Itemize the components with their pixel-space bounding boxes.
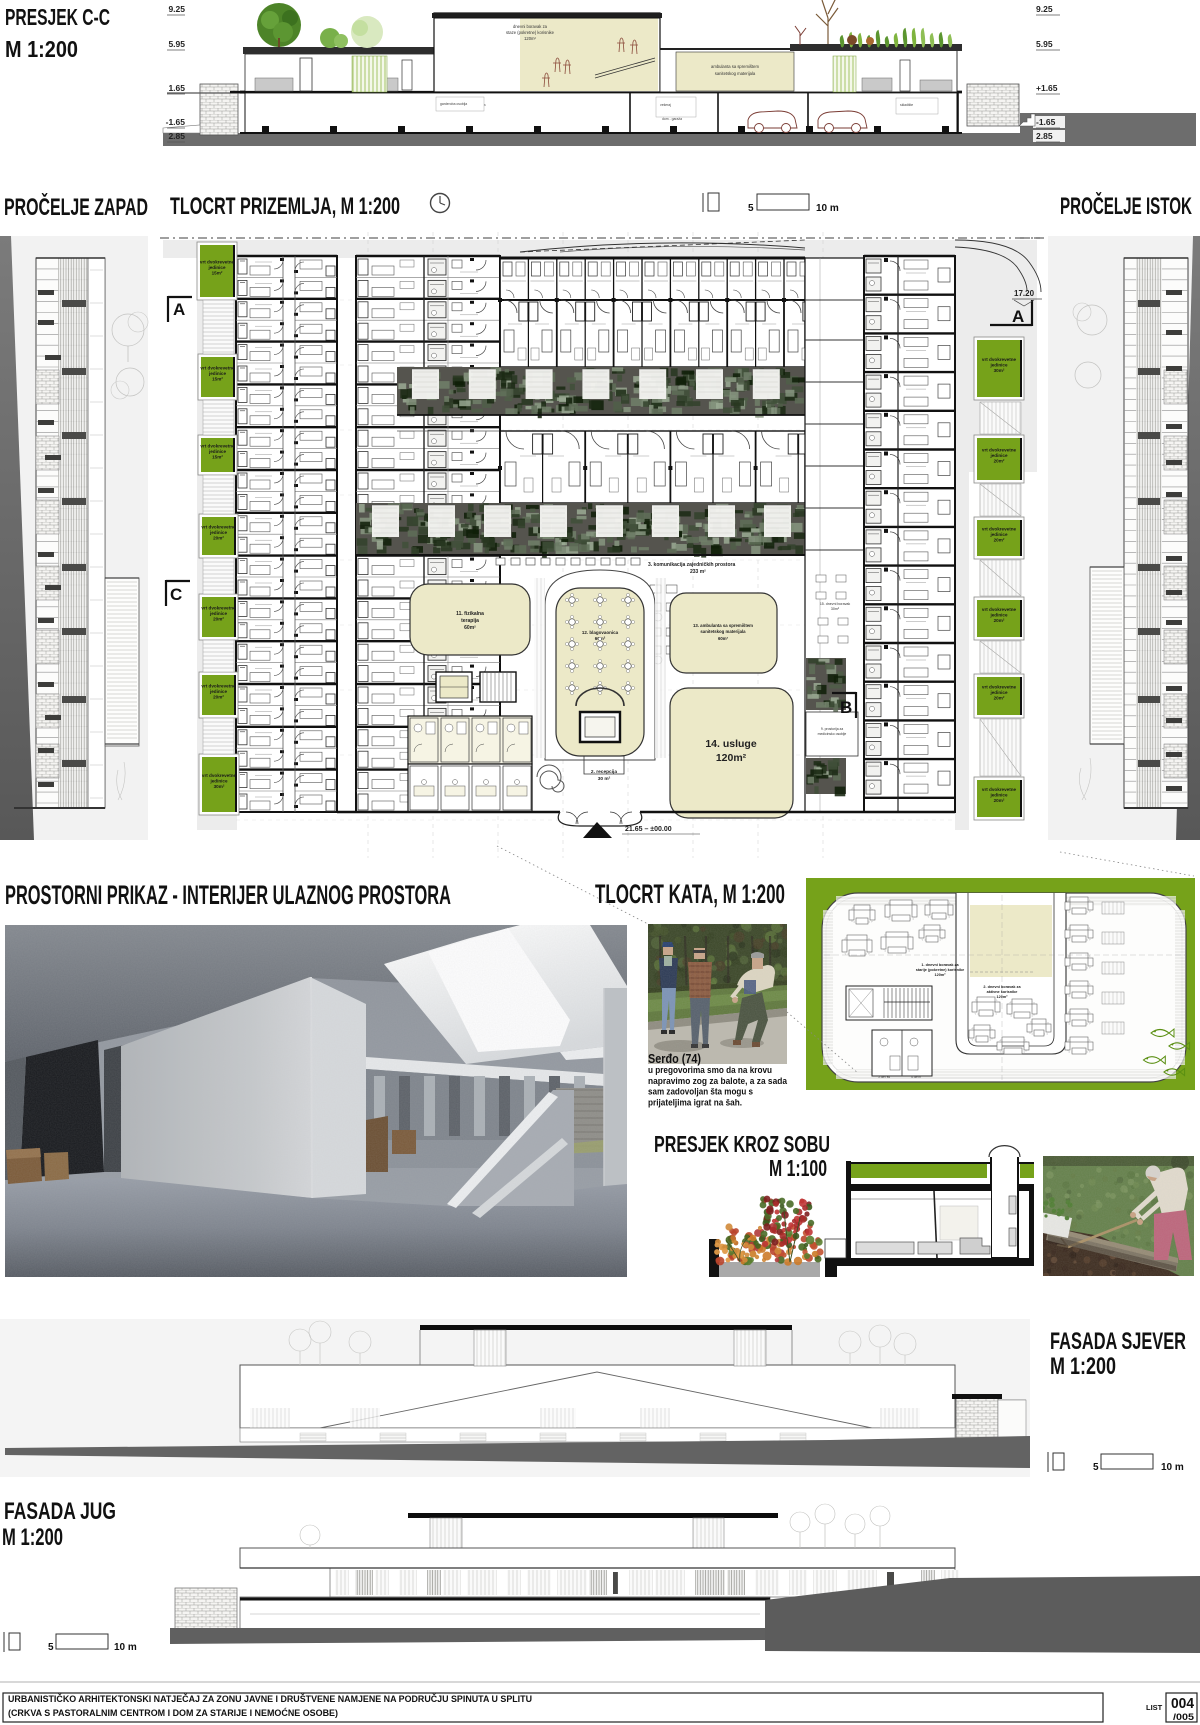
svg-text:9.25: 9.25	[168, 4, 185, 14]
svg-text:5.95: 5.95	[1036, 39, 1053, 49]
svg-text:LIST: LIST	[1146, 1703, 1163, 1712]
svg-text:vrt dvokrevetne: vrt dvokrevetne	[982, 685, 1017, 690]
svg-text:jedinice: jedinice	[209, 611, 228, 616]
svg-text:A: A	[1012, 307, 1024, 326]
svg-text:30 m²: 30 m²	[598, 776, 611, 782]
svg-text:233 m²: 233 m²	[690, 569, 706, 575]
svg-text:3. wc i za: 3. wc i za	[878, 1075, 890, 1079]
svg-text:5: 5	[48, 1642, 54, 1653]
svg-text:20m²: 20m²	[994, 696, 1005, 701]
svg-text:M 1:100: M 1:100	[769, 1155, 827, 1181]
svg-text:jedinice: jedinice	[989, 363, 1008, 368]
svg-text:FASADA JUG: FASADA JUG	[4, 1498, 116, 1525]
svg-text:5: 5	[1093, 1462, 1099, 1473]
svg-text:-1.65: -1.65	[166, 117, 186, 127]
svg-text:vešeraj: vešeraj	[660, 103, 671, 107]
svg-text:vrt dvokrevetne: vrt dvokrevetne	[201, 606, 236, 611]
svg-text:TLOCRT KATA, M 1:200: TLOCRT KATA, M 1:200	[595, 879, 785, 909]
svg-text:15. dnevni boravak: 15. dnevni boravak	[820, 602, 851, 606]
svg-text:1.65: 1.65	[168, 83, 185, 93]
svg-text:15m²: 15m²	[212, 377, 223, 382]
svg-text:3. komunikacija zajedničkih pr: 3. komunikacija zajedničkih prostora	[648, 562, 735, 568]
svg-text:vrt dvokrevetne: vrt dvokrevetne	[200, 444, 235, 449]
svg-text:Serđo (74): Serđo (74)	[648, 1051, 701, 1066]
svg-text:jedinice: jedinice	[208, 449, 227, 454]
svg-text:5: 5	[748, 203, 754, 214]
svg-text:10 m: 10 m	[816, 203, 839, 214]
svg-text:-1.65: -1.65	[1036, 117, 1056, 127]
svg-text:60m²: 60m²	[464, 625, 476, 631]
svg-text:17.20: 17.20	[1014, 289, 1035, 298]
svg-text:15m²: 15m²	[212, 271, 223, 276]
svg-text:FASADA SJEVER: FASADA SJEVER	[1050, 1328, 1186, 1355]
svg-text:/005: /005	[1173, 1712, 1194, 1722]
svg-text:12. blagovaonica: 12. blagovaonica	[582, 630, 619, 635]
svg-text:jedinice: jedinice	[989, 793, 1008, 798]
svg-text:30m²: 30m²	[214, 784, 225, 789]
svg-text:M 1:200: M 1:200	[1050, 1353, 1116, 1380]
svg-text:20m²: 20m²	[213, 617, 224, 622]
svg-text:PRESJEK KROZ SOBU: PRESJEK KROZ SOBU	[654, 1131, 830, 1157]
svg-text:skladište: skladište	[900, 103, 913, 107]
svg-text:4. wc m: 4. wc m	[911, 1075, 921, 1079]
svg-text:30m²: 30m²	[831, 607, 840, 611]
svg-text:vrt dvokrevetne: vrt dvokrevetne	[982, 787, 1017, 792]
svg-text:medicinsko osoblje: medicinsko osoblje	[818, 732, 847, 736]
svg-text:13. ambulanta sa spremištem: 13. ambulanta sa spremištem	[693, 623, 753, 628]
svg-text:vrt dvokrevetne: vrt dvokrevetne	[200, 366, 235, 371]
svg-text:sam zadovoljan šta mogu s: sam zadovoljan šta mogu s	[648, 1087, 753, 1098]
svg-text:sanitetskog materijala: sanitetskog materijala	[715, 71, 756, 76]
svg-text:120m²: 120m²	[716, 752, 747, 764]
svg-text:staze (pokretne) korisnike: staze (pokretne) korisnike	[506, 30, 555, 35]
svg-text:jedinice: jedinice	[209, 779, 228, 784]
svg-text:dnevni boravak za: dnevni boravak za	[513, 24, 548, 29]
svg-text:2. dnevni boravak za: 2. dnevni boravak za	[983, 985, 1021, 989]
svg-text:10 m: 10 m	[1161, 1462, 1184, 1473]
svg-text:vrt dvokrevetne: vrt dvokrevetne	[982, 448, 1017, 453]
svg-text:vrt dvokrevetne: vrt dvokrevetne	[201, 684, 236, 689]
svg-text:sanitetskog materijala: sanitetskog materijala	[700, 629, 746, 634]
svg-text:PRESJEK C-C: PRESJEK C-C	[5, 4, 110, 30]
svg-text:60m²: 60m²	[718, 636, 729, 641]
svg-text:garderoba osoblja: garderoba osoblja	[440, 102, 467, 106]
svg-text:vrt dvokrevetne: vrt dvokrevetne	[202, 773, 237, 778]
svg-text:jedinice: jedinice	[989, 690, 1008, 695]
svg-text:vrt dvokrevetne: vrt dvokrevetne	[200, 260, 235, 265]
svg-text:u pregovorima smo da na krovu: u pregovorima smo da na krovu	[648, 1065, 772, 1076]
svg-text:TLOCRT PRIZEMLJA, M 1:200: TLOCRT PRIZEMLJA, M 1:200	[170, 193, 400, 220]
svg-text:(CRKVA S PASTORALNIM CENTROM I: (CRKVA S PASTORALNIM CENTROM I DOM ZA ST…	[8, 1707, 338, 1719]
svg-text:B: B	[840, 698, 852, 717]
svg-text:5.95: 5.95	[168, 39, 185, 49]
svg-text:M 1:200: M 1:200	[5, 36, 78, 62]
svg-text:10 m: 10 m	[114, 1642, 137, 1653]
svg-text:A: A	[173, 300, 185, 319]
svg-text:9. prostorija za: 9. prostorija za	[821, 727, 843, 731]
svg-text:20m²: 20m²	[213, 536, 224, 541]
svg-text:dom - garaža: dom - garaža	[662, 117, 682, 121]
svg-text:prijateljima igrat na šah.: prijateljima igrat na šah.	[648, 1097, 742, 1108]
svg-text:vrt dvokrevetne: vrt dvokrevetne	[201, 525, 236, 530]
svg-text:jedinice: jedinice	[989, 613, 1008, 618]
svg-text:120m²: 120m²	[997, 995, 1009, 999]
svg-text:120m²: 120m²	[935, 973, 947, 977]
svg-text:20m²: 20m²	[213, 695, 224, 700]
svg-text:20m²: 20m²	[994, 618, 1005, 623]
svg-text:004: 004	[1171, 1695, 1195, 1712]
svg-text:jedinice: jedinice	[989, 532, 1008, 537]
svg-text:terapija: terapija	[461, 618, 479, 624]
svg-text:vrt dvokrevetne: vrt dvokrevetne	[982, 357, 1017, 362]
svg-text:9.25: 9.25	[1036, 4, 1053, 14]
svg-text:PROČELJE ZAPAD: PROČELJE ZAPAD	[4, 193, 148, 221]
svg-text:ambulanta sa spremištem: ambulanta sa spremištem	[711, 64, 759, 69]
svg-text:30m²: 30m²	[994, 368, 1005, 373]
svg-text:20m²: 20m²	[994, 538, 1005, 543]
svg-text:URBANISTIČKO ARHITEKTONSKI NAT: URBANISTIČKO ARHITEKTONSKI NATJEČAJ ZA Z…	[8, 1693, 532, 1705]
svg-text:M 1:200: M 1:200	[2, 1524, 63, 1551]
svg-text:napravimo zog za balote, a za: napravimo zog za balote, a za sada	[648, 1076, 788, 1087]
svg-text:15m²: 15m²	[212, 455, 223, 460]
svg-text:C: C	[170, 585, 182, 604]
svg-text:jedinice: jedinice	[209, 530, 228, 535]
svg-text:jedinice: jedinice	[209, 689, 228, 694]
svg-text:21.65 – ±00.00: 21.65 – ±00.00	[625, 826, 672, 833]
svg-text:+1.65: +1.65	[1036, 83, 1058, 93]
svg-text:jedinice: jedinice	[208, 371, 227, 376]
svg-text:vrt dvokrevetne: vrt dvokrevetne	[982, 527, 1017, 532]
svg-text:vrt dvokrevetne: vrt dvokrevetne	[982, 607, 1017, 612]
svg-text:120m²: 120m²	[524, 36, 536, 41]
svg-text:2.85: 2.85	[168, 131, 185, 141]
svg-text:PROČELJE ISTOK: PROČELJE ISTOK	[1060, 192, 1192, 220]
svg-text:20m²: 20m²	[994, 798, 1005, 803]
svg-text:11. fizikalna: 11. fizikalna	[456, 611, 484, 617]
svg-text:starije (pokretne) korisnike: starije (pokretne) korisnike	[916, 968, 965, 972]
svg-text:1. dnevni boravak za: 1. dnevni boravak za	[921, 963, 959, 967]
svg-text:2.85: 2.85	[1036, 131, 1053, 141]
svg-text:14. usluge: 14. usluge	[705, 738, 757, 750]
svg-text:PROSTORNI PRIKAZ - INTERIJER U: PROSTORNI PRIKAZ - INTERIJER ULAZNOG PRO…	[5, 880, 451, 910]
svg-text:jedinice: jedinice	[207, 265, 226, 270]
svg-text:20m²: 20m²	[994, 459, 1005, 464]
svg-text:jedinice: jedinice	[989, 453, 1008, 458]
